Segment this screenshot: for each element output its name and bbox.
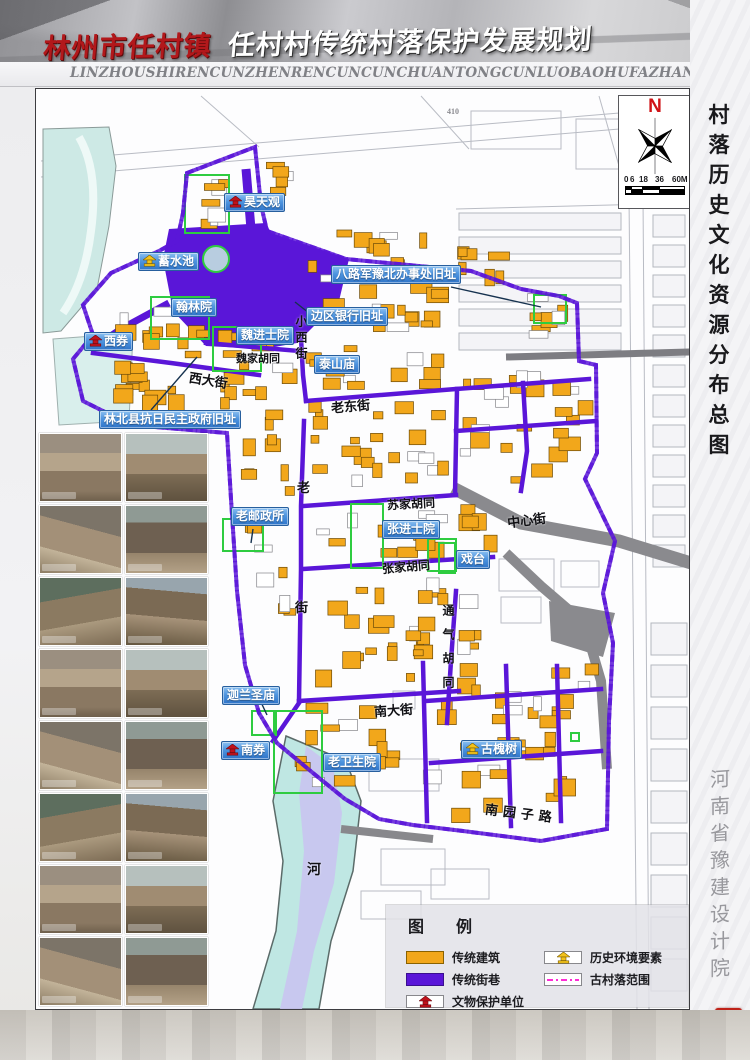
street-name-label: 街 [295, 597, 308, 616]
map-label: 迦兰圣庙 [222, 686, 280, 705]
photo-thumbnail [125, 505, 208, 574]
street-name-label: 通气胡同 [440, 604, 457, 700]
map-label: 西券 [84, 332, 133, 351]
sheet-title-vertical: 村落历史文化资源分布总图 [702, 100, 736, 460]
map-label: 翰林院 [171, 298, 217, 317]
pinyin-text: LINZHOUSHIRENCUNZHENRENCUNCUNCHUANTONGCU… [70, 65, 750, 81]
monument-icon [89, 335, 102, 347]
street-name-label: 魏家胡同 [236, 350, 280, 366]
photo-thumbnail [39, 505, 122, 574]
legend-swatch-monument-red [406, 995, 444, 1008]
photo-thumbnail [125, 721, 208, 790]
map-label: 蓄水池 [138, 252, 199, 271]
map-label-text: 老邮政所 [236, 510, 284, 522]
legend-swatch-boundary [544, 973, 582, 986]
map-label-text: 西券 [104, 335, 128, 347]
monument-icon [229, 196, 242, 208]
scale-bar [625, 186, 685, 195]
legend-title: 图 例 [408, 913, 486, 937]
photo-strip [39, 433, 208, 1009]
parcel-strips [459, 213, 687, 991]
title-plan-name: 任村村传统村落保护发展规划 [227, 24, 594, 61]
street-name-label: 老东街 [330, 394, 371, 416]
map-canvas: 昊天观 蓄水池八路军豫北办事处旧址翰林院边区银行旧址魏进士院 西券泰山庙林北县抗… [35, 88, 690, 1010]
bottom-photo-band [0, 1010, 750, 1060]
design-institute-name: 河南省豫建设计院 [706, 766, 734, 982]
map-label: 古槐树 [461, 740, 522, 759]
photo-thumbnail [125, 865, 208, 934]
compass-rose-icon [626, 117, 684, 175]
legend-item-label: 传统建筑 [452, 949, 500, 966]
right-sidebar: 村落历史文化资源分布总图 河南省豫建设计院 规划豫建 [690, 0, 750, 1060]
photo-thumbnail [39, 937, 122, 1006]
photo-thumbnail [39, 865, 122, 934]
map-label-text: 迦兰圣庙 [227, 689, 275, 701]
map-label-text: 南券 [241, 744, 265, 756]
map-label-text: 魏进士院 [241, 329, 289, 341]
north-label: N [648, 97, 662, 117]
legend-swatch-orange [406, 951, 444, 964]
legend-item-label: 文物保护单位 [452, 993, 524, 1010]
legend-swatch-purple [406, 973, 444, 986]
legend-box: 图 例 传统建筑传统街巷 文物保护单位 历史环境要素古村落范围 [386, 905, 688, 1007]
compass-box: N 06183660M [618, 95, 690, 209]
map-label: 八路军豫北办事处旧址 [331, 265, 461, 284]
map-label: 南券 [221, 741, 270, 760]
photo-thumbnail [125, 793, 208, 862]
scale-ticks: 06183660M [624, 175, 686, 185]
map-label-text: 昊天观 [244, 196, 280, 208]
photo-thumbnail [39, 721, 122, 790]
street-name-label: 南大街 [373, 699, 413, 721]
map-label-text: 古槐树 [481, 743, 517, 755]
legend-item-label: 历史环境要素 [590, 949, 662, 966]
map-label: 昊天观 [224, 193, 285, 212]
monument-icon [557, 952, 570, 964]
legend-item: 传统建筑 [406, 949, 500, 966]
map-label: 边区银行旧址 [306, 307, 388, 326]
header-banner: 林州市任村镇 任村村传统村落保护发展规划 [0, 0, 750, 62]
legend-item-label: 传统街巷 [452, 971, 500, 988]
pinyin-bar: LINZHOUSHIRENCUNZHENRENCUNCUNCHUANTONGCU… [0, 62, 750, 87]
map-label: 老卫生院 [323, 753, 381, 772]
monument-icon [143, 255, 156, 267]
map-label: 张进士院 [382, 520, 440, 539]
map-label: 林北县抗日民主政府旧址 [99, 410, 241, 429]
photo-thumbnail [125, 577, 208, 646]
map-label-text: 翰林院 [176, 301, 212, 313]
map-label-text: 老卫生院 [328, 756, 376, 768]
plan-sheet: 林州市任村镇 任村村传统村落保护发展规划 08 LINZHOUSHIRENCUN… [0, 0, 750, 1060]
photo-thumbnail [39, 433, 122, 502]
street-name-label: 老 [297, 477, 310, 496]
map-label-text: 八路军豫北办事处旧址 [336, 268, 456, 280]
photo-thumbnail [39, 577, 122, 646]
photo-thumbnail [39, 793, 122, 862]
map-label-text: 张进士院 [387, 523, 435, 535]
legend-item: 文物保护单位 [406, 993, 524, 1010]
map-label-text: 蓄水池 [158, 255, 194, 267]
legend-item-label: 古村落范围 [590, 971, 650, 988]
street-name-label: 苏家胡同 [387, 494, 436, 513]
monument-icon [226, 744, 239, 756]
street-name-label: 河 [307, 859, 321, 879]
legend-item: 历史环境要素 [544, 949, 662, 966]
monument-icon [419, 996, 432, 1008]
map-label: 老邮政所 [231, 507, 289, 526]
photo-thumbnail [125, 937, 208, 1006]
photo-thumbnail [39, 649, 122, 718]
map-label-text: 戏台 [461, 553, 485, 565]
legend-item: 古村落范围 [544, 971, 650, 988]
photo-thumbnail [125, 433, 208, 502]
map-label-text: 泰山庙 [319, 358, 355, 370]
photo-thumbnail [125, 649, 208, 718]
street-name-label: 410 [447, 107, 459, 116]
map-label: 泰山庙 [314, 355, 360, 374]
legend-item: 传统街巷 [406, 971, 500, 988]
reservoir-circle [203, 246, 229, 272]
legend-swatch-monument-yellow [544, 951, 582, 964]
map-label-text: 林北县抗日民主政府旧址 [104, 413, 236, 425]
map-label: 魏进士院 [236, 326, 294, 345]
map-label: 戏台 [456, 550, 490, 569]
monument-icon [466, 743, 479, 755]
map-label-text: 边区银行旧址 [311, 310, 383, 322]
title-town-name: 林州市任村镇 [42, 31, 213, 62]
